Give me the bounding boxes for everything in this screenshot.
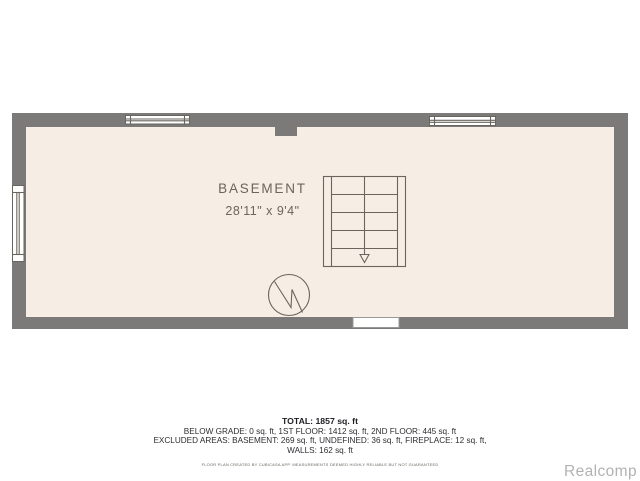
floor-plan-symbols bbox=[0, 0, 640, 480]
fireplace-icon bbox=[269, 275, 310, 316]
realcomp-watermark: Realcomp bbox=[564, 463, 637, 481]
wall-notch bbox=[275, 126, 297, 136]
room-dimensions: 28'11" x 9'4" bbox=[175, 204, 350, 218]
summary-total: TOTAL: 1857 sq. ft bbox=[0, 417, 640, 427]
summary-floors: BELOW GRADE: 0 sq. ft, 1ST FLOOR: 1412 s… bbox=[0, 427, 640, 437]
door-opening bbox=[353, 318, 399, 328]
room-label: BASEMENT bbox=[175, 181, 350, 196]
window-icon-top-right bbox=[430, 117, 496, 126]
area-summary: TOTAL: 1857 sq. ft BELOW GRADE: 0 sq. ft… bbox=[0, 417, 640, 470]
window-icon-top-left bbox=[126, 116, 190, 125]
summary-walls: WALLS: 162 sq. ft bbox=[0, 446, 640, 456]
summary-excluded: EXCLUDED AREAS: BASEMENT: 269 sq. ft, UN… bbox=[0, 436, 640, 446]
disclaimer-text: FLOOR PLAN CREATED BY CUBICASA APP. MEAS… bbox=[0, 460, 640, 470]
window-icon-left bbox=[13, 186, 25, 262]
